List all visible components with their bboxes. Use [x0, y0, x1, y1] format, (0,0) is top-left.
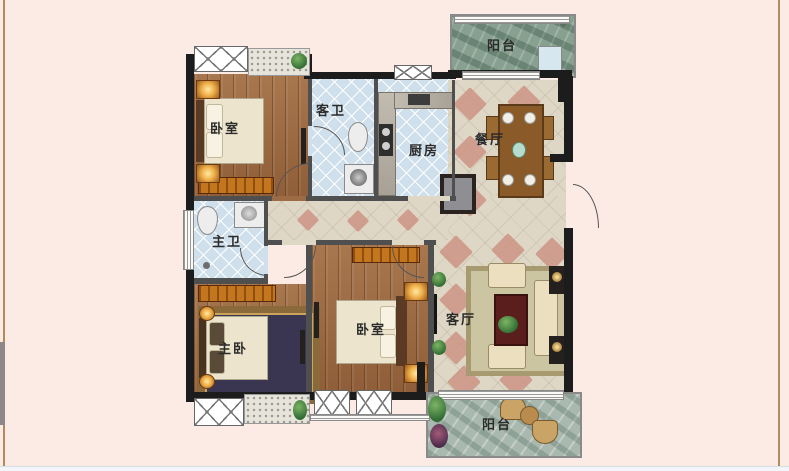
sink-bowl	[241, 206, 257, 221]
room-label-bedroom-middle: 卧室	[348, 323, 394, 339]
interior-wall	[428, 243, 434, 392]
door-opening	[282, 240, 316, 245]
table-flowers	[498, 316, 518, 333]
room-label-master-bedroom: 主卧	[210, 342, 256, 358]
burner	[382, 128, 390, 136]
door-opening	[392, 240, 424, 245]
interior-wall	[186, 278, 268, 284]
interior-wall	[374, 79, 378, 196]
burner	[382, 142, 390, 150]
plate	[502, 174, 514, 186]
tv	[300, 330, 305, 364]
balcony-plant	[428, 396, 446, 422]
dresser	[198, 285, 276, 302]
wall	[550, 154, 573, 162]
right-page-border	[778, 0, 780, 466]
sliding-door	[438, 390, 564, 400]
balcony-plant	[430, 424, 448, 448]
room-label-bedroom-top: 卧室	[202, 122, 248, 138]
plant	[432, 340, 446, 355]
wall	[564, 228, 573, 392]
door-opening	[308, 126, 312, 156]
cabinet-lamp	[552, 342, 562, 352]
interior-wall	[452, 80, 455, 196]
bottom-strip	[0, 466, 789, 471]
washer-drum	[350, 169, 367, 186]
plant	[432, 272, 446, 287]
window-plant	[293, 400, 307, 420]
bed-headboard	[396, 296, 407, 366]
plate	[502, 112, 514, 124]
window-plant	[291, 53, 307, 69]
room-label-dining: 餐厅	[467, 133, 513, 149]
nightstand-lamp	[196, 80, 220, 99]
door-opening	[408, 196, 450, 201]
entry-door-arc	[573, 184, 599, 228]
window-sill	[310, 414, 430, 421]
kitchen-window	[394, 65, 432, 80]
nightstand-lamp	[404, 282, 428, 301]
decor-cabinet	[440, 174, 476, 214]
tv	[301, 128, 306, 164]
room-label-balcony-bottom: 阳台	[474, 418, 520, 434]
shower-head	[203, 262, 210, 269]
window	[183, 210, 194, 270]
nightstand-lamp	[196, 164, 220, 183]
sliding-door	[462, 71, 540, 80]
wall	[564, 76, 573, 162]
armchair	[488, 263, 526, 288]
nightstand-lamp	[199, 374, 215, 389]
nightstand-lamp	[199, 306, 215, 321]
centerpiece	[512, 142, 526, 158]
plate	[524, 112, 536, 124]
wall	[417, 362, 425, 400]
balcony-top-railing	[454, 15, 570, 24]
plate	[524, 174, 536, 186]
window	[356, 390, 392, 416]
room-label-master-bath: 主卫	[204, 235, 250, 251]
room-label-living: 客厅	[438, 313, 484, 329]
armchair	[488, 344, 526, 369]
scrollbar-fragment	[0, 342, 5, 425]
window	[194, 46, 248, 72]
tv	[314, 302, 319, 338]
sink	[408, 94, 430, 105]
room-label-balcony-top: 阳台	[479, 39, 525, 55]
wall	[304, 72, 456, 79]
window	[314, 390, 350, 416]
room-label-kitchen: 厨房	[401, 144, 447, 160]
room-label-guest-bathroom: 客卫	[308, 104, 354, 120]
bay-window	[194, 398, 244, 426]
cabinet-lamp	[552, 272, 562, 282]
floorplan-image[interactable]: 卧室 客卫 厨房 餐厅 阳台 主卫 主卧 卧室 客厅 阳台	[0, 0, 789, 471]
rattan-chair	[532, 420, 558, 444]
